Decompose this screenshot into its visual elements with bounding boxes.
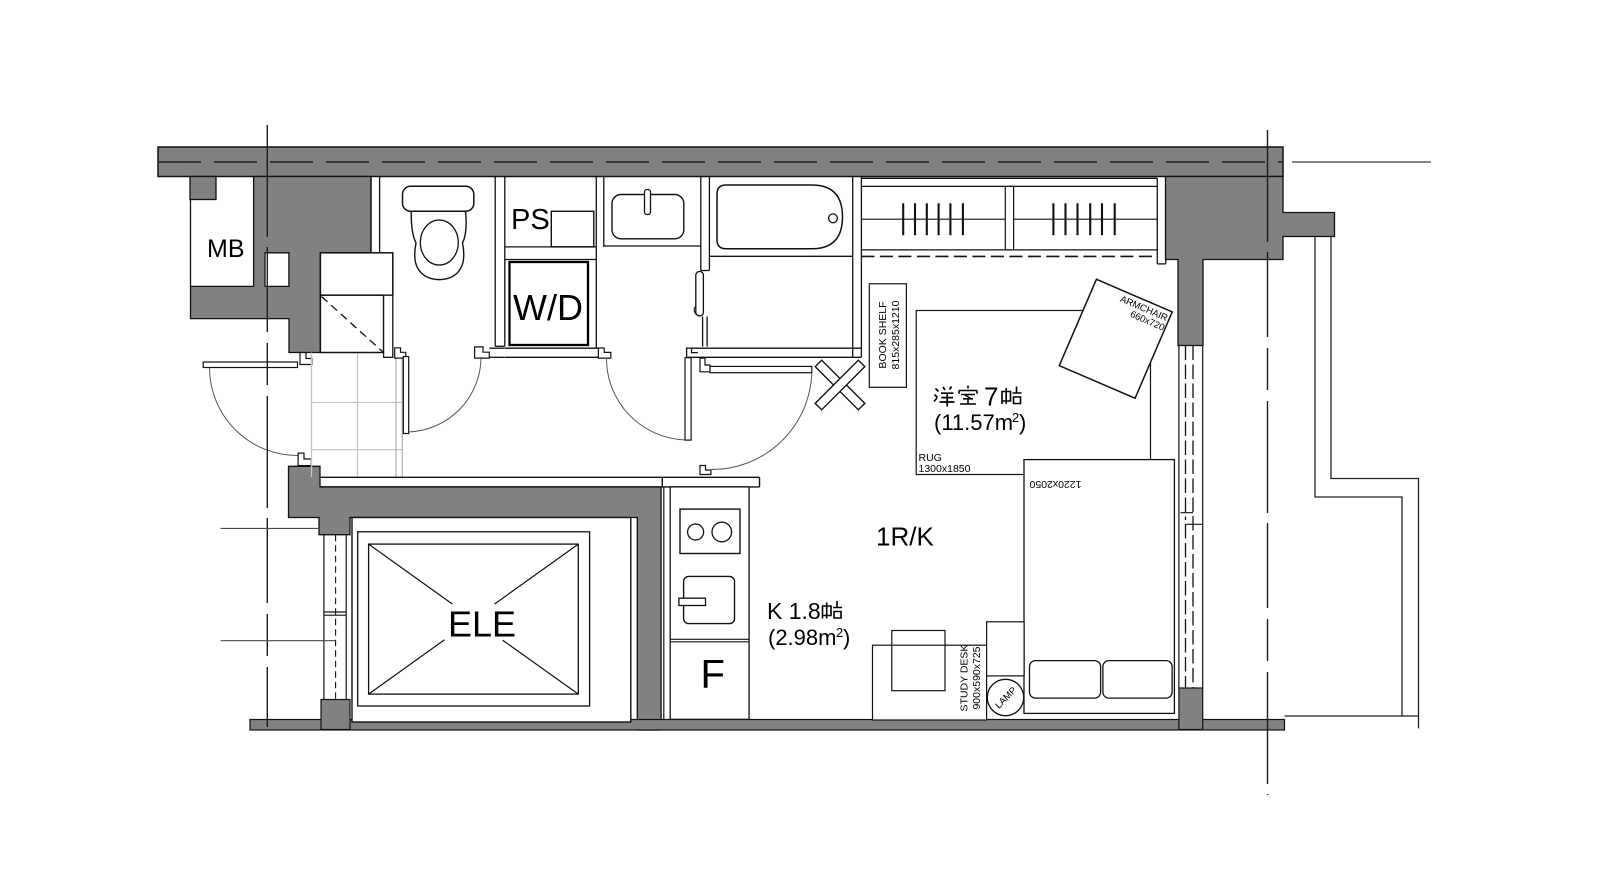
svg-text:1220x2050: 1220x2050	[1029, 478, 1081, 490]
svg-text:F: F	[701, 653, 725, 697]
svg-text:ELE: ELE	[448, 604, 516, 645]
svg-text:(2.98m: (2.98m	[768, 625, 836, 650]
svg-text:MB: MB	[207, 235, 245, 263]
svg-text:K 1.8: K 1.8	[767, 598, 821, 624]
svg-text:1R/K: 1R/K	[876, 522, 934, 552]
svg-text:BOOK SHELF: BOOK SHELF	[877, 301, 889, 368]
svg-text:): )	[1019, 410, 1026, 435]
svg-text:W/D: W/D	[513, 287, 583, 328]
svg-text:1300x1850: 1300x1850	[919, 463, 971, 475]
svg-text:(11.57m: (11.57m	[934, 410, 1013, 435]
svg-text:7: 7	[984, 382, 998, 412]
svg-text:STUDY DESK: STUDY DESK	[959, 645, 971, 712]
svg-text:900x590x725: 900x590x725	[971, 646, 983, 709]
svg-text:PS: PS	[511, 204, 550, 236]
svg-text:): )	[843, 625, 850, 650]
svg-text:815x285x1210: 815x285x1210	[890, 300, 902, 369]
